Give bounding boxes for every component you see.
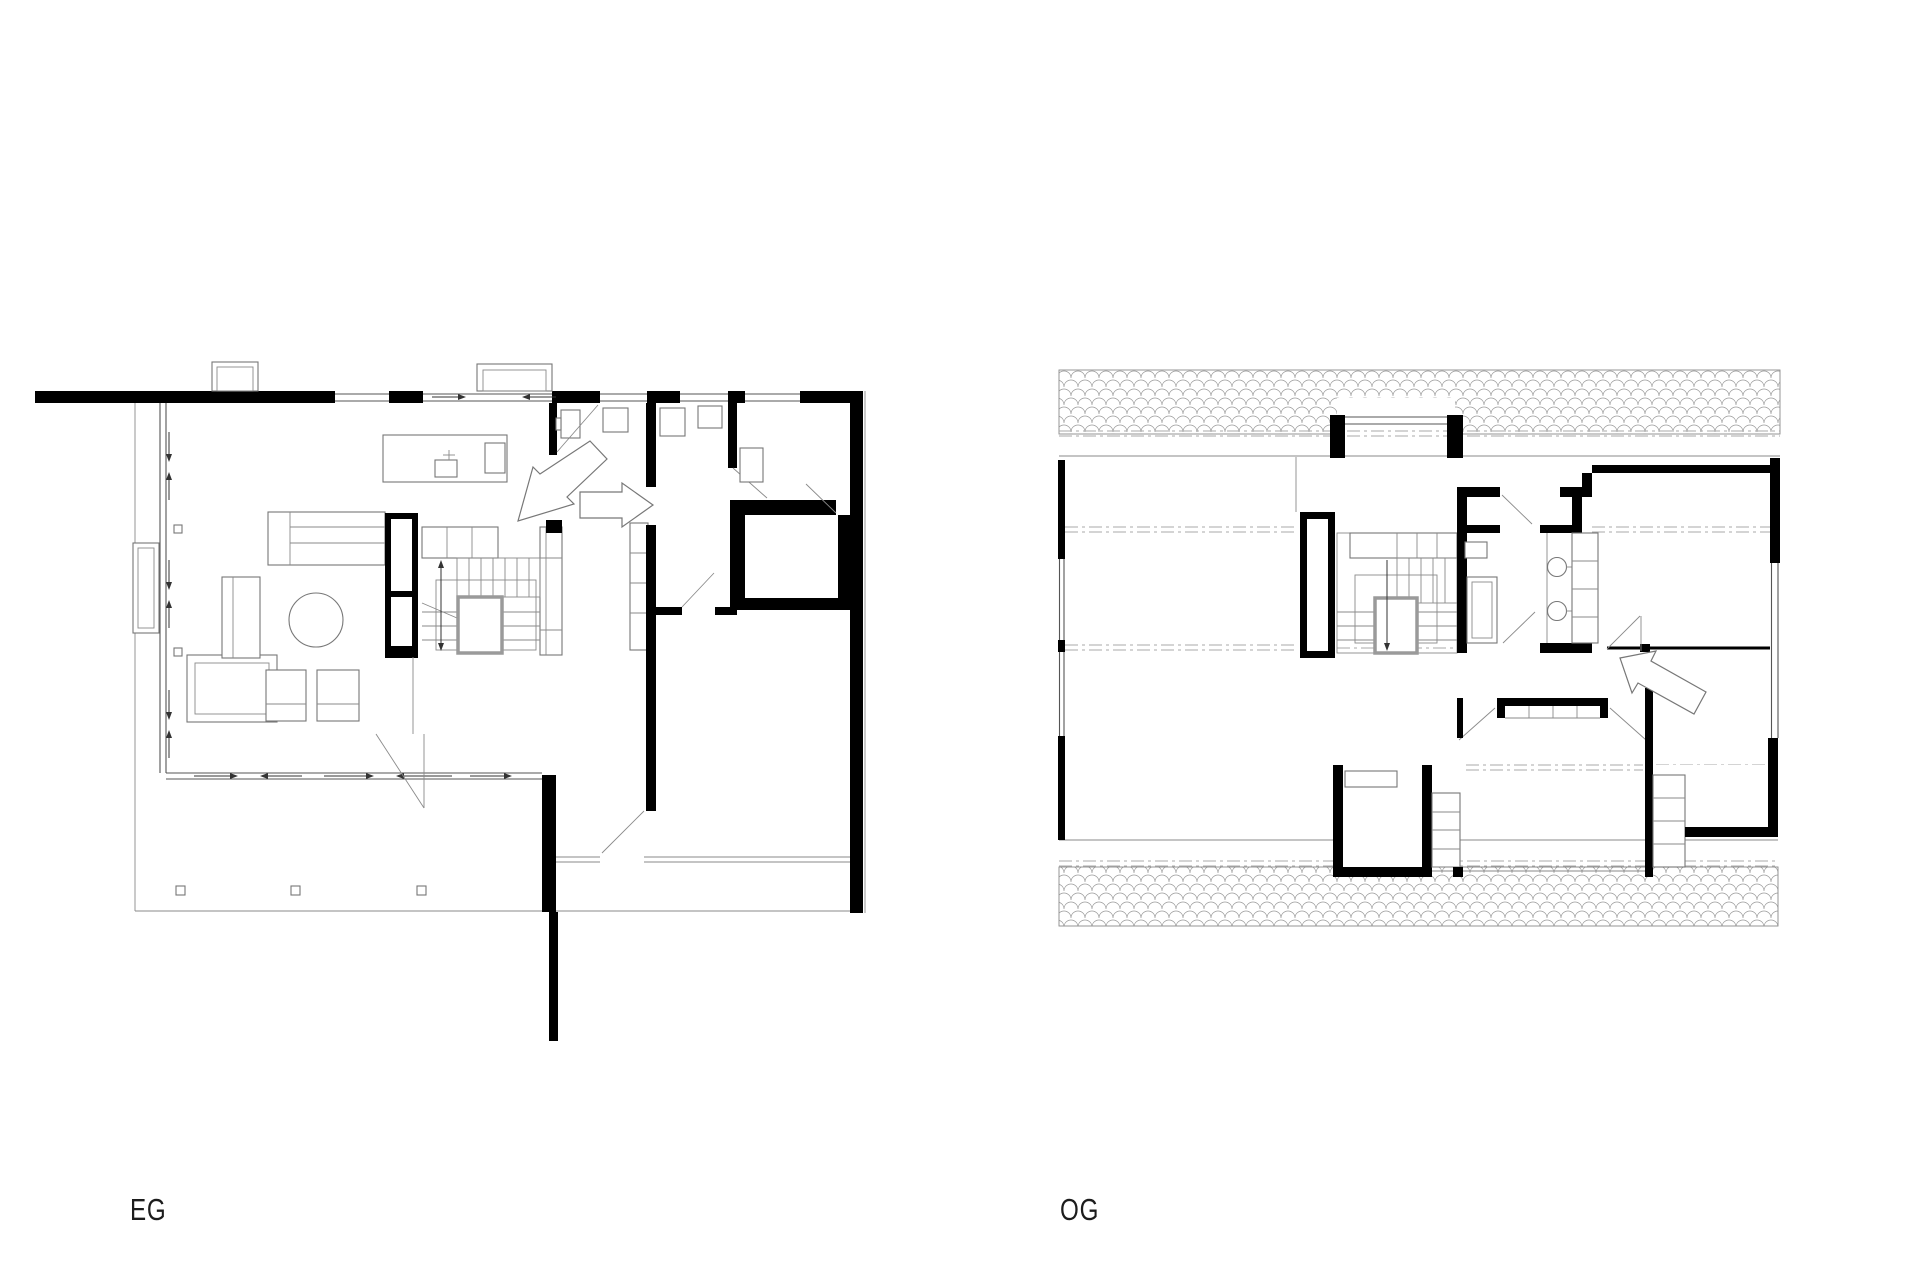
eg-side-table xyxy=(222,577,260,658)
eg-terrace xyxy=(135,655,850,911)
og-wall-pillar xyxy=(1300,512,1335,658)
og-staircase xyxy=(1337,533,1457,653)
eg-coffee-table xyxy=(289,593,343,647)
eg-entry-arrows xyxy=(518,441,653,527)
og-stair-landing xyxy=(1375,598,1417,653)
og-washbasin-1 xyxy=(1548,558,1567,577)
og-bathtub xyxy=(1467,577,1497,643)
eg-skylight-boxes xyxy=(212,362,552,391)
eg-garden-wall xyxy=(542,775,558,1041)
og-washbasin-2 xyxy=(1548,602,1567,621)
eg-stair-landing xyxy=(458,597,502,653)
og-roof-strip-top xyxy=(1059,370,1780,458)
eg-east-wall xyxy=(850,391,865,913)
eg-floor-plan xyxy=(35,362,865,1041)
og-west-wall xyxy=(1058,460,1065,840)
eg-hall-walls xyxy=(602,403,656,853)
og-bathroom-fixtures xyxy=(1465,533,1598,643)
floor-plan-canvas xyxy=(0,0,1920,1280)
eg-terrace-steps xyxy=(187,655,277,722)
eg-storage-room xyxy=(730,484,860,610)
drawing-sheet: EG OG xyxy=(0,0,1920,1280)
og-room-top-right xyxy=(1592,465,1770,652)
eg-label: EG xyxy=(130,1192,167,1228)
og-dormer-left xyxy=(1333,765,1460,877)
eg-sofa xyxy=(268,512,385,565)
eg-west-facade xyxy=(133,403,182,911)
og-floor-plan xyxy=(1058,370,1780,926)
og-entry-arrow xyxy=(1620,651,1706,714)
eg-staircase xyxy=(422,520,562,655)
eg-wall-pillar xyxy=(385,513,418,658)
eg-armchairs xyxy=(266,670,359,721)
og-dormer-right xyxy=(1645,765,1778,867)
og-label: OG xyxy=(1060,1192,1099,1228)
eg-south-glazing xyxy=(166,773,542,779)
eg-north-wall xyxy=(35,391,863,403)
og-sideboard xyxy=(1457,688,1653,767)
eg-kitchen-island xyxy=(383,435,507,482)
